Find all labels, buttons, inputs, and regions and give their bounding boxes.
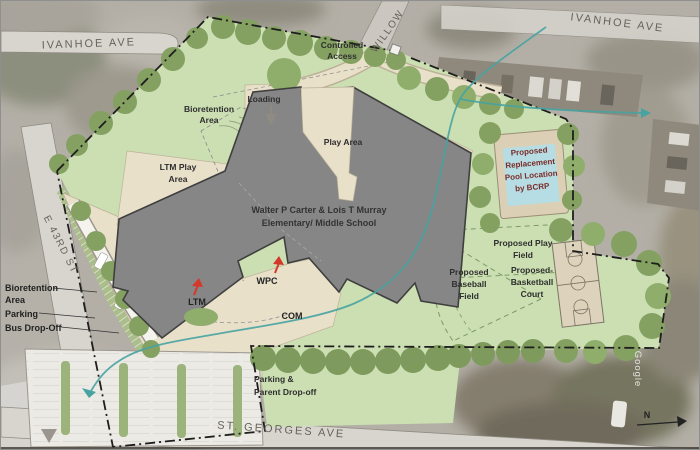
label-wpc: WPC	[257, 276, 278, 286]
label-ltm-play-area: LTM Play	[160, 162, 197, 172]
site-plan-map: IVANHOE AVE IVANHOE AVE WILLOW E 43RD ST…	[1, 1, 700, 450]
svg-text:Court: Court	[521, 289, 544, 299]
svg-text:Parent Drop-off: Parent Drop-off	[254, 387, 317, 397]
plaza-green-oval	[184, 308, 218, 326]
site-plan-screenshot: IVANHOE AVE IVANHOE AVE WILLOW E 43RD ST…	[0, 0, 700, 450]
label-play-area: Play Area	[324, 137, 363, 147]
label-com: COM	[282, 311, 303, 321]
rowhouses-east	[647, 119, 700, 211]
label-bioretention-west: Bioretention	[5, 283, 58, 293]
svg-text:Area: Area	[5, 295, 26, 305]
svg-text:Basketball: Basketball	[511, 277, 554, 287]
label-play-field: Proposed Play	[493, 238, 552, 248]
label-ltm: LTM	[188, 297, 206, 307]
label-baseball-field: Proposed	[449, 267, 488, 277]
svg-text:Area: Area	[200, 115, 219, 125]
label-basketball-court: Proposed-	[511, 265, 553, 275]
label-parking-parent: Parking &	[254, 374, 294, 384]
svg-text:N: N	[644, 410, 651, 420]
google-watermark: Google	[632, 351, 643, 388]
svg-text:Baseball: Baseball	[452, 279, 487, 289]
school-name: Walter P Carter & Lois T Murray	[251, 205, 386, 215]
label-controlled-access: Controlled	[321, 40, 364, 50]
svg-text:Field: Field	[513, 250, 533, 260]
label-loading: Loading	[247, 94, 280, 104]
svg-text:Area: Area	[169, 174, 188, 184]
parking-lot	[25, 349, 263, 447]
label-bioretention-north: Bioretention	[184, 104, 234, 114]
svg-text:Field: Field	[459, 291, 479, 301]
svg-text:Elementary/ Middle School: Elementary/ Middle School	[262, 218, 377, 228]
label-parking-west: Parking	[5, 309, 38, 319]
svg-text:Access: Access	[327, 51, 357, 61]
label-bus-dropoff: Bus Drop-Off	[5, 323, 62, 333]
